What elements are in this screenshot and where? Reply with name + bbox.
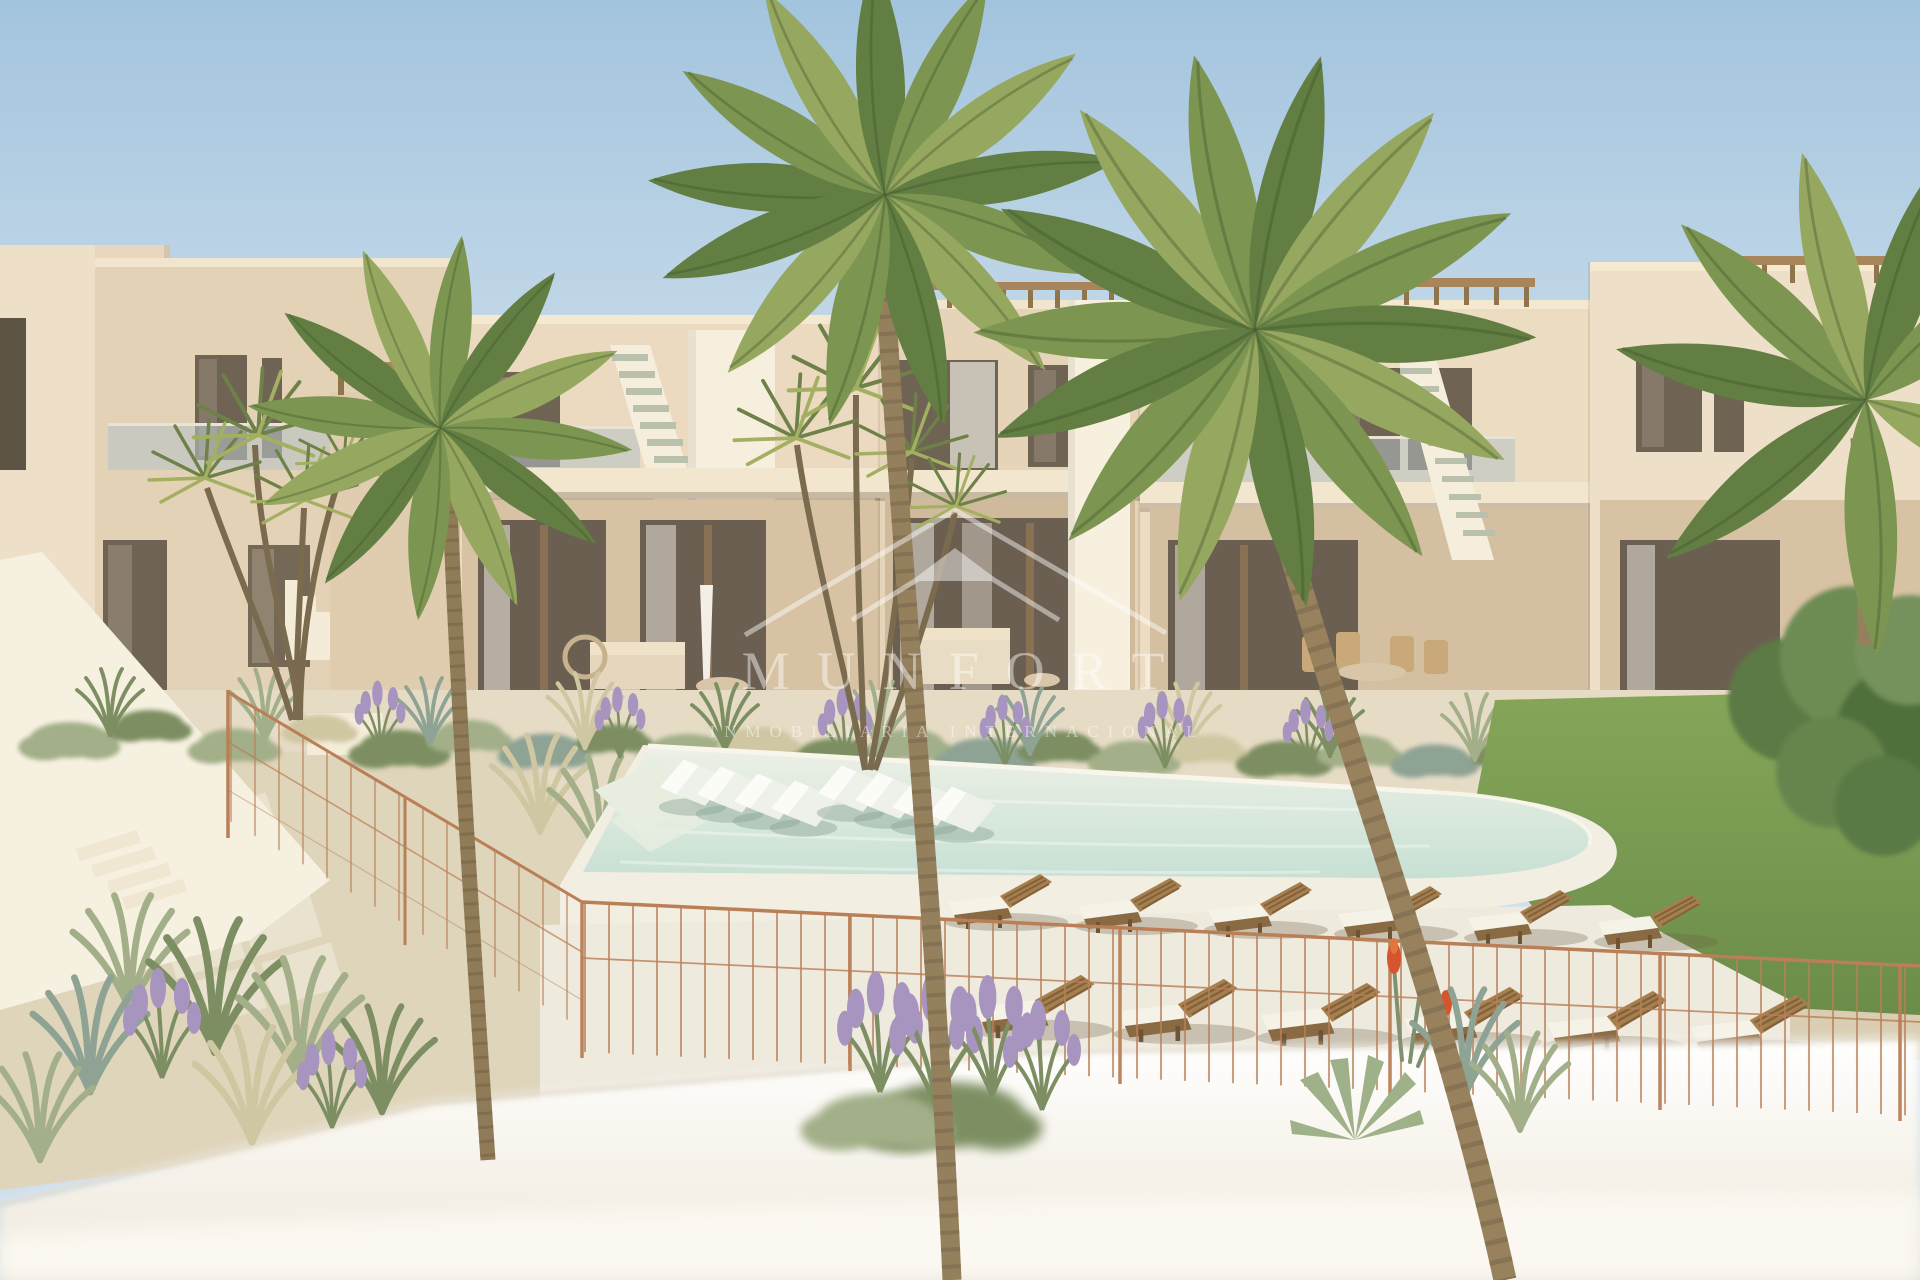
property-render: MUNFORT INMOBILIARIA INTERNACIONAL (0, 0, 1920, 1280)
render-artwork (0, 0, 1920, 1280)
